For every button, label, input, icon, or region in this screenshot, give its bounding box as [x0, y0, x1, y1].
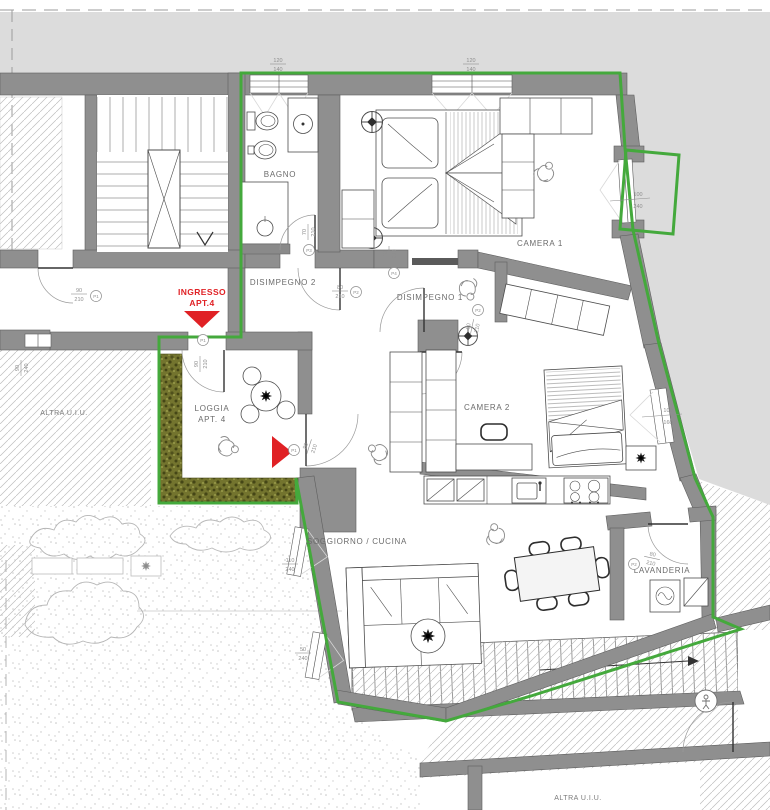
floor-plan-drawing: BAGNO CAMERA 1 DISIMPEGNO 2 DISIMPEGNO 1…: [0, 0, 770, 810]
svg-text:210: 210: [311, 227, 317, 236]
svg-text:140: 140: [466, 67, 475, 73]
label-disimpegno1: DISIMPEGNO 1: [397, 293, 463, 302]
svg-text:210: 210: [203, 359, 209, 368]
entrance-door-arc: [38, 268, 73, 303]
bagno-south-wall-b: [315, 250, 374, 268]
loggia-entry-door-arc: [182, 350, 224, 392]
svg-text:140: 140: [273, 67, 282, 73]
stairwell-upper-treads: [97, 97, 228, 152]
label-loggia-2: APT. 4: [198, 415, 226, 424]
dim-disimpegno1-door: P2 80210: [464, 305, 483, 337]
washbasin-counter: [288, 98, 318, 152]
svg-text:240: 240: [633, 204, 642, 210]
svg-text:90: 90: [76, 288, 82, 294]
bagno-camera1-wall: [318, 95, 340, 252]
hedge-south: [158, 478, 298, 503]
planter-2: [77, 558, 123, 574]
svg-text:90: 90: [15, 365, 21, 371]
svg-text:100: 100: [633, 192, 642, 198]
label-ingresso-1: INGRESSO: [178, 287, 226, 297]
label-loggia-1: LOGGIA: [195, 404, 230, 413]
planter-1: [32, 558, 72, 574]
svg-text:120: 120: [466, 58, 475, 64]
stairwell: [97, 95, 228, 252]
dim-loggia-soggiorno-door: P1 90210: [289, 438, 321, 458]
dining-set: [501, 533, 613, 615]
svg-text:240: 240: [24, 363, 30, 372]
svg-text:210: 210: [310, 444, 319, 455]
svg-text:P1: P1: [93, 294, 99, 299]
disimpegno2-door-arc: [298, 268, 340, 310]
svg-text:210: 210: [474, 323, 482, 333]
camera1-south-wall-a: [374, 250, 408, 268]
loggia-table-set: [241, 367, 295, 423]
wardrobe-camera1: [500, 98, 592, 218]
single-bed-icon: [544, 366, 627, 468]
desk: [456, 444, 532, 470]
label-disimpegno2: DISIMPEGNO 2: [250, 278, 316, 287]
loggia-chair: [277, 401, 295, 419]
label-altra-left: ALTRA U.I.U.: [40, 410, 88, 417]
window-altra-left: [25, 334, 51, 347]
svg-text:P2: P2: [475, 308, 481, 313]
hatch-left-strip: [0, 97, 62, 249]
stove-icon: [564, 478, 608, 504]
label-soggiorno: SOGGIORNO / CUCINA: [307, 537, 407, 546]
svg-text:40: 40: [383, 251, 389, 257]
label-lavanderia: LAVANDERIA: [634, 566, 691, 575]
svg-text:80: 80: [337, 285, 343, 291]
corridor-top-wall-b: [73, 250, 245, 268]
svg-text:P2: P2: [353, 290, 359, 295]
loggia-chair: [243, 367, 261, 385]
svg-text:P1: P1: [200, 338, 206, 343]
loggia-soggiorno-door-arc: [306, 414, 358, 466]
svg-text:P1: P1: [291, 448, 297, 453]
tall-units-column: [390, 352, 422, 472]
dim-loggia-entry-door: P1 90210: [194, 335, 209, 373]
stair-landing: [738, 630, 770, 745]
svg-text:P2: P2: [631, 562, 637, 567]
person-icon: [364, 440, 391, 466]
coffee-table-icon: [411, 619, 445, 653]
floor-plan-page: BAGNO CAMERA 1 DISIMPEGNO 2 DISIMPEGNO 1…: [0, 0, 770, 810]
label-altra-bottom: ALTRA U.I.U.: [554, 795, 602, 802]
camera1-south-wall-b: [458, 250, 478, 268]
stairwell-west-wall: [85, 95, 97, 252]
north-exterior-wall: [0, 73, 627, 95]
svg-text:120: 120: [273, 58, 282, 64]
wardrobe-camera2: [426, 350, 456, 472]
person-icon: [217, 436, 240, 458]
svg-text:240: 240: [285, 567, 294, 573]
loggia-north-wall-a: [50, 332, 188, 350]
svg-text:210: 210: [392, 249, 398, 258]
ceiling-light-icon: [362, 112, 383, 133]
svg-text:160: 160: [663, 420, 672, 426]
svg-text:50: 50: [300, 647, 306, 653]
sofa-icon: [346, 563, 481, 668]
svg-text:90: 90: [194, 361, 200, 367]
entry-arrow-down: [184, 311, 220, 328]
camera1-door-leaf: [412, 258, 458, 265]
lavanderia-west-wall: [610, 528, 624, 620]
svg-text:110: 110: [286, 558, 295, 564]
svg-text:90: 90: [302, 442, 310, 450]
dim-entrance-door: 90210 P1: [71, 288, 102, 303]
outside-top-band: [0, 12, 770, 73]
bidet-icon: [248, 141, 276, 159]
person-icon: [532, 158, 558, 184]
dim-disimpegno2-door: 80210 P2: [332, 285, 362, 300]
corridor-top-wall-a: [0, 250, 38, 268]
hatch-altra-left: [0, 350, 151, 506]
laundry-sink: [684, 578, 708, 606]
person-icon: [483, 522, 506, 546]
label-camera2: CAMERA 2: [464, 403, 510, 412]
svg-text:70: 70: [302, 229, 308, 235]
svg-text:240: 240: [298, 656, 307, 662]
label-ingresso-2: APT.4: [189, 298, 214, 308]
vanity-unit: [240, 182, 290, 254]
shower-person-icon: [695, 690, 717, 712]
desk-chair: [481, 424, 507, 440]
washing-machine-icon: [650, 580, 680, 612]
closet-disimpegno2: [342, 190, 374, 248]
svg-text:100: 100: [663, 408, 672, 414]
entry-doors: [38, 268, 73, 303]
svg-text:210: 210: [74, 297, 83, 303]
svg-text:P4: P4: [391, 271, 397, 276]
loggia-hedges: [158, 354, 298, 503]
sink-icon: [512, 478, 546, 503]
nightstand: [626, 446, 656, 470]
toilet-icon: [247, 112, 278, 130]
label-bagno: BAGNO: [264, 170, 296, 179]
label-camera1: CAMERA 1: [517, 239, 563, 248]
svg-text:210: 210: [335, 294, 344, 300]
camera2-furniture: [426, 327, 656, 472]
lavanderia-north-wall-a: [606, 512, 652, 530]
svg-text:P3: P3: [306, 248, 312, 253]
loggia-north-wall-b: [226, 332, 312, 350]
lower-pier: [468, 766, 482, 810]
